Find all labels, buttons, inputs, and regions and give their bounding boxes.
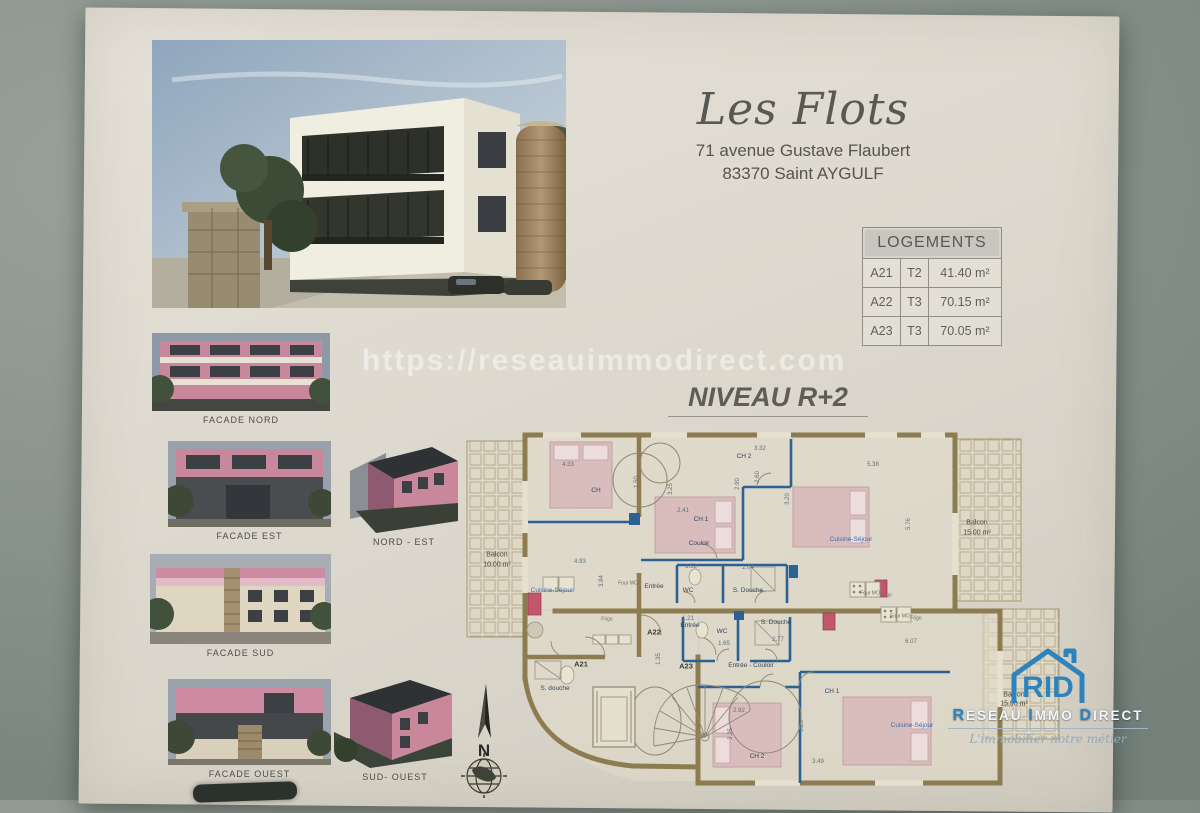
plan-label: 3.25 <box>728 728 734 740</box>
plan-label: S. Douche <box>733 588 763 595</box>
agency-tagline: L'immobilier notre métier <box>948 728 1148 746</box>
facade-nord-image <box>152 333 330 411</box>
apartment-id: A22 <box>863 288 901 317</box>
compass-icon: N <box>448 680 520 798</box>
plan-label: A23 <box>679 662 693 670</box>
plan-label: Entrée - Couloir <box>728 663 774 670</box>
facade-label: NORD - EST <box>346 537 462 547</box>
plan-label: 2.92 <box>733 708 745 714</box>
apartment-type: T3 <box>900 288 928 317</box>
plan-label: 1.65 <box>718 641 730 647</box>
agency-name-part: R <box>952 707 966 724</box>
apartment-area: 70.05 m² <box>928 317 1001 346</box>
plan-label: Entrée <box>680 623 699 630</box>
plan-label: Couloir <box>689 541 710 548</box>
agency-logo-icon: RID <box>1000 645 1096 707</box>
plan-label: Cuisine-Séjour <box>891 723 934 730</box>
agency-name-part: D <box>1079 707 1093 724</box>
facade-label: FACADE NORD <box>152 415 330 425</box>
address-line2: 83370 Saint AYGULF <box>688 163 918 186</box>
plan-label: 3.20 <box>785 493 791 505</box>
plan-label: CH 2 <box>750 754 765 761</box>
plan-label: 1.35 <box>656 653 662 665</box>
title-block: Les Flots 71 avenue Gustave Flaubert 833… <box>688 86 918 186</box>
plan-label: Frigo <box>910 617 921 622</box>
plan-label: 3.26 <box>799 720 805 732</box>
agency-name: RESEAU IMMO DIRECT <box>948 707 1148 725</box>
facade-nord: FACADE NORD <box>152 333 330 425</box>
plan-label: S. Douche <box>761 620 791 627</box>
facade-label: FACADE EST <box>168 531 331 541</box>
facade-ouest: FACADE OUEST <box>168 679 331 779</box>
plan-label: 4.33 <box>562 462 574 468</box>
building-render-image <box>152 40 566 308</box>
facade-sud-ouest: SUD- OUEST <box>330 672 460 782</box>
plan-label: 5.76 <box>906 518 912 530</box>
address-line1: 71 avenue Gustave Flaubert <box>688 140 918 163</box>
level-heading: NIVEAU R+2 <box>658 382 878 417</box>
plan-label: 3.84 <box>599 575 605 587</box>
apartment-type: T3 <box>900 317 928 346</box>
facade-ouest-image <box>168 679 331 765</box>
plan-label: 15.00 m² <box>963 530 991 537</box>
plan-label: 2.41 <box>677 508 689 514</box>
plan-label: A21 <box>574 660 588 668</box>
agency-name-part: IRECT <box>1093 708 1144 723</box>
facade-sud-ouest-image <box>330 672 460 768</box>
plan-label: 2.90 <box>735 478 741 490</box>
agency-name-part: ESEAU <box>966 708 1028 723</box>
plan-label: 1.50 <box>634 476 640 488</box>
plan-label: Frigo <box>601 618 612 623</box>
plan-label: CH <box>591 488 600 495</box>
plan-label: Frigo <box>880 594 891 599</box>
watermark-url: https://reseauimmodirect.com <box>362 344 852 378</box>
agency-logo-monogram: RID <box>1022 671 1074 704</box>
plan-label: 3.32 <box>754 446 766 452</box>
table-row: A22 T3 70.15 m² <box>863 288 1002 317</box>
plan-label: Balcon <box>486 552 507 559</box>
facade-sud-image <box>150 554 331 644</box>
agency-name-part: MMO <box>1035 708 1080 723</box>
apartment-id: A23 <box>863 317 901 346</box>
plan-label: 2.60 <box>755 471 761 483</box>
facade-label: FACADE OUEST <box>168 769 331 779</box>
plan-label: Four MO <box>618 582 638 587</box>
plan-label: 4.93 <box>574 559 586 565</box>
plan-label: 6.07 <box>905 639 917 645</box>
plan-label: Balcon <box>966 520 987 527</box>
plan-label: Four MO <box>860 592 880 597</box>
plan-label: 5.38 <box>867 462 879 468</box>
plan-label: A22 <box>647 628 661 636</box>
address: 71 avenue Gustave Flaubert 83370 Saint A… <box>688 140 918 186</box>
plan-label: 2.77 <box>772 637 784 643</box>
plan-label: Four MO <box>890 615 910 620</box>
plan-label: Entrée <box>644 584 663 591</box>
facade-est: FACADE EST <box>168 441 331 541</box>
plan-label: 3.49 <box>812 759 824 765</box>
plan-label: WC <box>717 629 728 636</box>
table-row: A21 T2 41.40 m² <box>863 259 1002 288</box>
plan-label: CH 2 <box>737 454 752 461</box>
plan-label: CH 1 <box>825 689 840 696</box>
facade-est-image <box>168 441 331 527</box>
apartment-id: A21 <box>863 259 901 288</box>
plan-label: 3.25 <box>668 483 674 495</box>
facade-label: SUD- OUEST <box>330 772 460 782</box>
plan-label: 1.52 <box>685 564 697 570</box>
facade-nord-est: NORD - EST <box>346 441 462 547</box>
building-render <box>152 40 566 313</box>
compass-north-label: N <box>478 741 490 760</box>
table-title: LOGEMENTS <box>863 228 1002 259</box>
compass: N <box>448 680 520 803</box>
plan-label: WC <box>683 588 694 595</box>
facade-nord-est-image <box>346 441 462 533</box>
apartment-area: 70.15 m² <box>928 288 1001 317</box>
page-title: Les Flots <box>688 86 918 134</box>
table-row: A23 T3 70.05 m² <box>863 317 1002 346</box>
facade-sud: FACADE SUD <box>150 554 331 658</box>
apartment-area: 41.40 m² <box>928 259 1001 288</box>
logements-table: LOGEMENTS A21 T2 41.40 m² A22 T3 70.15 m… <box>862 227 1002 346</box>
plan-label: Cuisine-Séjour <box>531 588 574 595</box>
plan-label: 2.04 <box>742 565 754 571</box>
agency-logo: RID RESEAU IMMO DIRECT L'immobilier notr… <box>948 645 1148 746</box>
plan-label: CH 1 <box>694 517 709 524</box>
plan-label: Cuisine-Séjour <box>830 537 873 544</box>
facade-label: FACADE SUD <box>150 648 331 658</box>
plan-label: 10.00 m² <box>483 562 511 569</box>
plan-label: S. douche <box>540 686 569 693</box>
apartment-type: T2 <box>900 259 928 288</box>
